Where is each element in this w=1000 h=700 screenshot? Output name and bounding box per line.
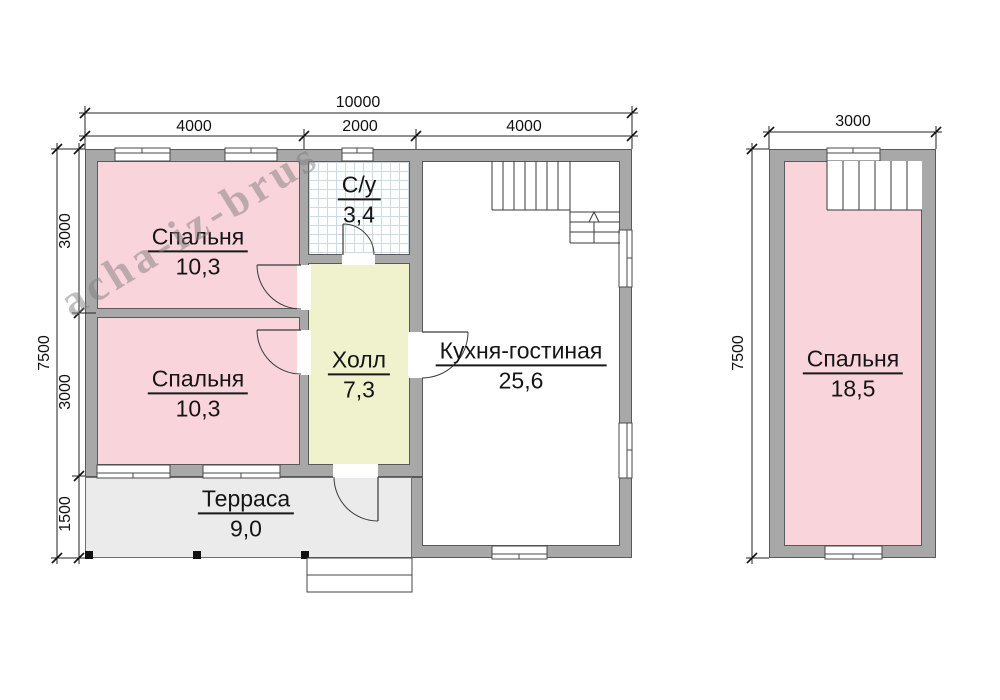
room-name: Спальня: [803, 345, 903, 372]
label-bedroom-2: Спальня 10,3: [148, 365, 248, 422]
room-area: 10,3: [148, 254, 248, 281]
dim-width-segment-2: 2000: [342, 118, 378, 136]
dim-height-segment-2: 3000: [57, 374, 75, 410]
room-name: Холл: [328, 346, 390, 373]
dim-total-width-floor2: 3000: [835, 113, 871, 131]
label-bathroom: С/у 3,4: [338, 171, 381, 228]
label-bedroom-1: Спальня 10,3: [148, 223, 248, 280]
room-name: Спальня: [148, 365, 248, 392]
dim-total-height-floor2: 7500: [730, 335, 748, 371]
room-area: 18,5: [803, 376, 903, 403]
room-name: Кухня-гостиная: [436, 337, 607, 364]
dim-width-segment-1: 4000: [176, 118, 212, 136]
dim-width-segment-3: 4000: [506, 118, 542, 136]
door-opening-bedroom-2: [297, 330, 311, 375]
room-area: 3,4: [338, 202, 381, 229]
room-name: Терраса: [198, 485, 294, 512]
dim-total-height-floor1: 7500: [36, 335, 54, 371]
room-area: 25,6: [436, 368, 607, 395]
door-opening-bedroom-1: [297, 265, 311, 310]
door-opening-hall-terrace: [333, 464, 378, 478]
door-opening-bathroom: [342, 253, 375, 265]
label-hall: Холл 7,3: [328, 346, 390, 403]
floor-plan-canvas: Спальня 10,3 Спальня 10,3 С/у 3,4 Холл 7…: [0, 0, 1000, 700]
dim-total-width-floor1: 10000: [336, 94, 381, 112]
entry-steps: [307, 558, 412, 592]
door-opening-hall-kitchen: [408, 332, 424, 378]
label-kitchen-living: Кухня-гостиная 25,6: [436, 337, 607, 394]
room-name: Спальня: [148, 223, 248, 250]
label-bedroom-upper: Спальня 18,5: [803, 345, 903, 402]
room-area: 7,3: [328, 377, 390, 404]
room-area: 9,0: [198, 516, 294, 543]
label-terrace: Терраса 9,0: [198, 485, 294, 542]
dim-height-segment-3: 1500: [57, 496, 75, 532]
room-name: С/у: [338, 171, 381, 198]
dim-height-segment-1: 3000: [57, 213, 75, 249]
room-area: 10,3: [148, 396, 248, 423]
